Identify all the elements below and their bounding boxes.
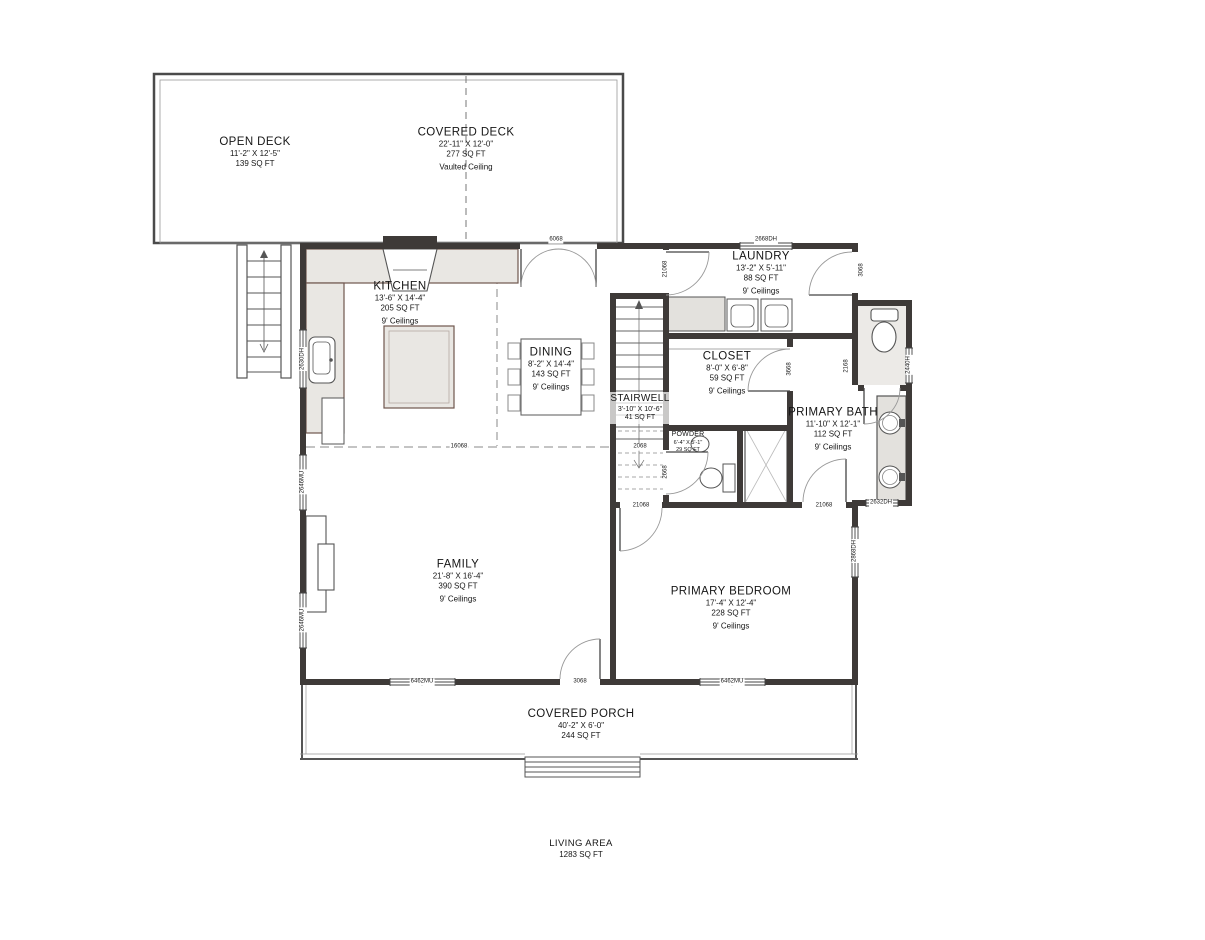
room-ceiling: 9' Ceilings: [732, 287, 790, 297]
room-ceiling: 9' Ceilings: [671, 622, 792, 632]
laundry-counter: [667, 297, 725, 331]
room-ceiling: 9' Ceilings: [703, 387, 751, 397]
wall-tag: 3668: [787, 361, 794, 376]
wall-tag: 3068: [859, 262, 866, 277]
room-name: PRIMARY BEDROOM: [671, 584, 792, 598]
dashed-lines: [306, 250, 663, 489]
kitchen-sink-icon: [309, 337, 335, 383]
room-dims: 11'-2" X 12'-5": [219, 149, 290, 159]
room-ceiling: 9' Ceilings: [788, 443, 878, 453]
room-label-primary-bath: PRIMARY BATH 11'-10" X 12'-1" 112 SQ FT …: [788, 405, 878, 452]
wall-tag: 2868DH: [852, 539, 859, 563]
room-label-kitchen: KITCHEN 13'-6" X 14'-4" 205 SQ FT 9' Cei…: [373, 279, 426, 326]
wc-toilet-icon: [871, 309, 898, 352]
room-label-family: FAMILY 21'-8" X 16'-4" 390 SQ FT 9' Ceil…: [433, 557, 484, 604]
washer-icon: [727, 299, 758, 331]
room-area: 244 SQ FT: [528, 731, 635, 741]
wall-tag: 6462MU: [410, 679, 435, 686]
room-ceiling: 9' Ceilings: [528, 383, 574, 393]
room-label-covered-porch: COVERED PORCH 40'-2" X 6'-0" 244 SQ FT: [528, 707, 635, 741]
wall-tag: 16068: [450, 444, 469, 451]
room-area: 1283 SQ FT: [549, 850, 613, 860]
room-ceiling: Vaulted Ceiling: [418, 163, 515, 173]
kitchen-island: [384, 326, 454, 408]
wall-tag: 2440H: [906, 355, 913, 375]
room-name: COVERED DECK: [418, 125, 515, 139]
floor-plan-canvas: OPEN DECK 11'-2" X 12'-5" 139 SQ FT COVE…: [0, 0, 1205, 940]
wall-tag: 2630DH: [300, 347, 307, 371]
room-dims: 8'-0" X 6'-8": [703, 364, 751, 374]
room-dims: 13'-2" X 5'-11": [732, 264, 790, 274]
room-area: 228 SQ FT: [671, 609, 792, 619]
room-name: KITCHEN: [373, 279, 426, 293]
room-area: 277 SQ FT: [418, 150, 515, 160]
wall-tag: 2168: [844, 358, 851, 373]
room-label-living-area: LIVING AREA 1283 SQ FT: [549, 838, 613, 860]
room-dims: 21'-8" X 16'-4": [433, 572, 484, 582]
wall-tag: 2646MU: [300, 470, 307, 495]
room-ceiling: 9' Ceilings: [373, 317, 426, 327]
room-dims: 17'-4" X 12'-4": [671, 599, 792, 609]
room-area: 88 SQ FT: [732, 274, 790, 284]
wall-tag: 2068: [632, 444, 647, 451]
dryer-icon: [761, 299, 792, 331]
room-label-primary-bedroom: PRIMARY BEDROOM 17'-4" X 12'-4" 228 SQ F…: [671, 584, 792, 631]
wall-tag: 2632DH: [869, 500, 893, 507]
room-area: 143 SQ FT: [528, 370, 574, 380]
wall-tag: 2646MU: [300, 608, 307, 633]
room-name: FAMILY: [433, 557, 484, 571]
wall-tag: 6068: [548, 237, 563, 244]
room-dims: 3'-10" X 10'-6": [610, 406, 669, 415]
room-label-covered-deck: COVERED DECK 22'-11" X 12'-0" 277 SQ FT …: [418, 125, 515, 172]
room-area: 29 SQ FT: [672, 446, 705, 453]
wall-tag: 2668: [663, 464, 670, 479]
room-dims: 13'-6" X 14'-4": [373, 294, 426, 304]
dishwasher-icon: [322, 398, 344, 444]
room-area: 59 SQ FT: [703, 374, 751, 384]
room-name: PRIMARY BATH: [788, 405, 878, 419]
room-dims: 22'-11" X 12'-0": [418, 140, 515, 150]
media-cabinet-icon: [306, 516, 334, 612]
wall-tag: 6462MU: [720, 679, 745, 686]
room-name: OPEN DECK: [219, 135, 290, 149]
room-name: LIVING AREA: [549, 838, 613, 850]
room-name: STAIRWELL: [610, 393, 669, 406]
room-name: POWDER: [672, 431, 705, 440]
wall-tag: 3068: [572, 679, 587, 686]
room-dims: 6'-4" X 5'-1": [672, 440, 705, 447]
room-area: 139 SQ FT: [219, 159, 290, 169]
room-label-laundry: LAUNDRY 13'-2" X 5'-11" 88 SQ FT 9' Ceil…: [732, 249, 790, 296]
floor-plan-drawing: [0, 0, 1205, 940]
room-label-powder: POWDER 6'-4" X 5'-1" 29 SQ FT: [672, 431, 705, 454]
room-area: 390 SQ FT: [433, 582, 484, 592]
room-name: LAUNDRY: [732, 249, 790, 263]
room-label-dining: DINING 8'-2" X 14'-4" 143 SQ FT 9' Ceili…: [528, 345, 574, 392]
room-name: CLOSET: [703, 349, 751, 363]
room-label-open-deck: OPEN DECK 11'-2" X 12'-5" 139 SQ FT: [219, 135, 290, 169]
room-label-closet: CLOSET 8'-0" X 6'-8" 59 SQ FT 9' Ceiling…: [703, 349, 751, 396]
room-area: 205 SQ FT: [373, 304, 426, 314]
room-label-stairwell: STAIRWELL 3'-10" X 10'-6" 41 SQ FT: [608, 392, 671, 424]
wall-tag: 2668DH: [754, 237, 778, 244]
room-dims: 11'-10" X 12'-1": [788, 420, 878, 430]
porch-steps-icon: [525, 757, 640, 777]
room-area: 112 SQ FT: [788, 430, 878, 440]
wall-tag: 21068: [632, 503, 651, 510]
room-ceiling: 9' Ceilings: [433, 595, 484, 605]
room-name: DINING: [528, 345, 574, 359]
room-area: 41 SQ FT: [610, 414, 669, 423]
deck-stairs-icon: [237, 245, 291, 378]
wall-tag: 21068: [663, 260, 670, 279]
shower-icon: [745, 427, 787, 503]
room-dims: 8'-2" X 14'-4": [528, 360, 574, 370]
wall-tag: 21068: [815, 503, 834, 510]
room-name: COVERED PORCH: [528, 707, 635, 721]
room-dims: 40'-2" X 6'-0": [528, 721, 635, 731]
